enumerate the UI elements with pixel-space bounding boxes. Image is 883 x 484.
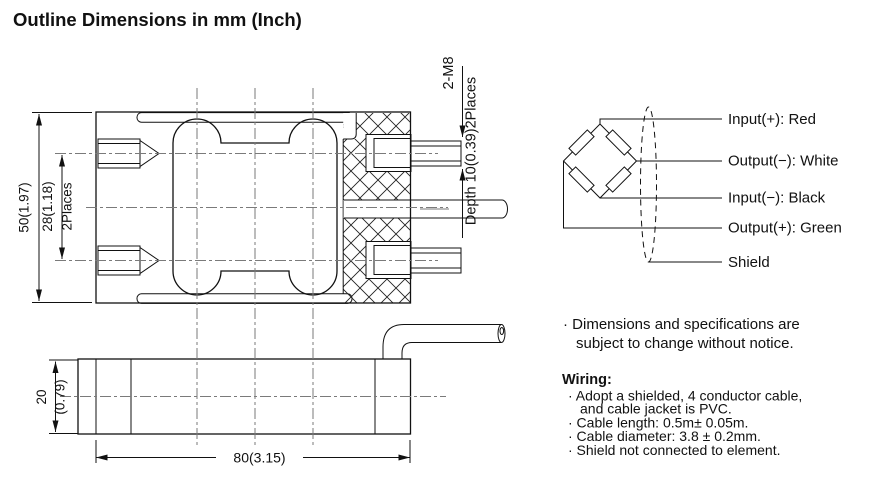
wire-label-input-minus: Input(−): Black	[728, 190, 826, 207]
page-title: Outline Dimensions in mm (Inch)	[13, 9, 302, 30]
dim-bolt-spacing-label: 28(1.18)	[40, 181, 55, 231]
thread-depth-label: Depth 10(0.39)2Places	[464, 77, 480, 225]
wire-label-input-plus: Input(+): Red	[728, 111, 816, 128]
side-view	[78, 325, 505, 435]
dim-thickness-mm-label: 20	[34, 389, 49, 404]
dim-bolt-spacing-places-label: 2Places	[60, 182, 75, 230]
disclaimer-line2: subject to change without notice.	[576, 335, 794, 352]
cable-shield-ellipse	[641, 107, 657, 262]
disclaimer-line1: · Dimensions and specifications are	[563, 316, 800, 333]
dim-height-label: 50(1.97)	[17, 182, 32, 232]
technical-drawing: Outline Dimensions in mm (Inch)	[0, 0, 883, 484]
wire-label-output-minus: Output(−): White	[728, 153, 838, 170]
wiring-diagram: Input(+): Red Output(−): White Input(−):…	[564, 107, 842, 271]
dim-thickness-inch-label: (0.79)	[53, 379, 68, 414]
dim-length-label: 80(3.15)	[233, 450, 285, 466]
bridge-diamond	[564, 124, 637, 198]
wiring-note-4: · Shield not connected to element.	[568, 442, 780, 458]
bridge-resistors	[569, 130, 631, 192]
cable-side	[383, 325, 505, 360]
wire-label-output-plus: Output(+): Green	[728, 220, 842, 237]
outline-dimensions-page: Outline Dimensions in mm (Inch)	[0, 0, 883, 484]
cable-plan	[344, 200, 508, 218]
notes: · Dimensions and specifications are subj…	[562, 316, 802, 458]
wire-label-shield: Shield	[728, 254, 770, 271]
wiring-notes-title: Wiring:	[562, 372, 612, 388]
thread-label: 2-M8	[441, 56, 457, 89]
